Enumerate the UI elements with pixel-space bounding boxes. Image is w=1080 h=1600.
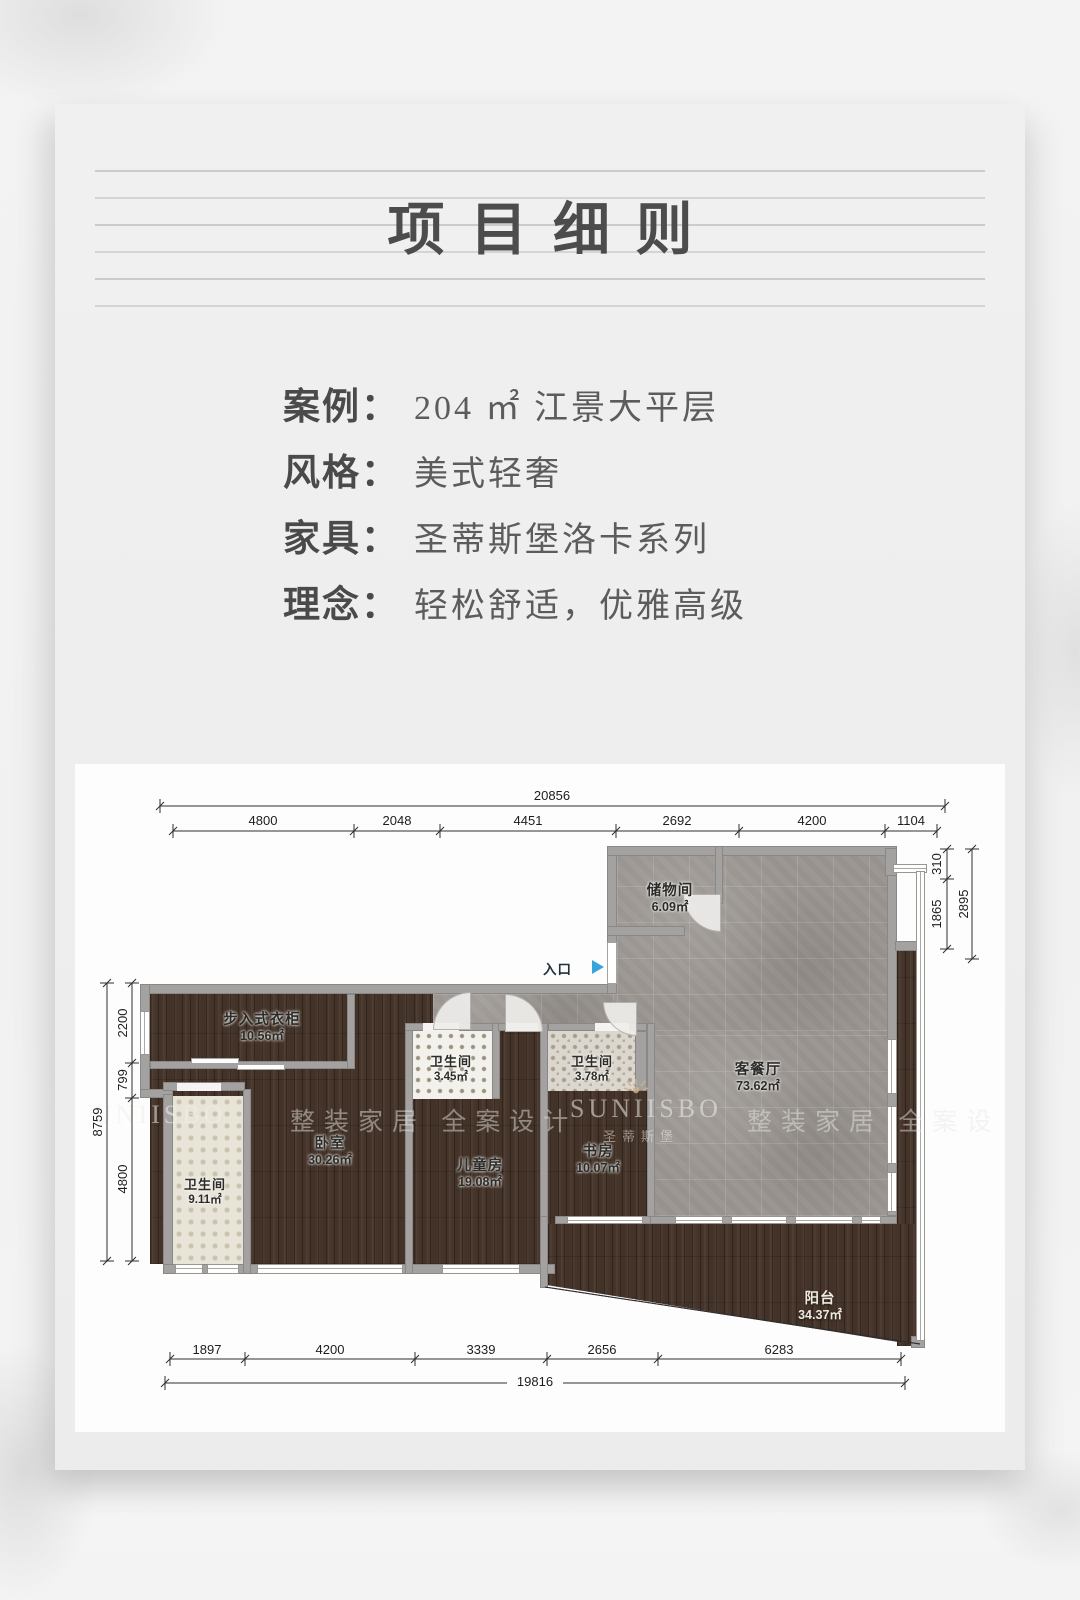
window: [887, 1106, 897, 1164]
info-label: 家具：: [283, 519, 400, 560]
sliding-door: [237, 1064, 285, 1070]
svg-text:310: 310: [929, 853, 944, 875]
rule-line: [95, 305, 985, 307]
room-label-balcony: 阳台 34.37㎡: [770, 1290, 870, 1324]
room-label-bedroom: 卧室 30.26㎡: [280, 1135, 380, 1169]
wall: [607, 926, 685, 936]
room-label-living: 客餐厅 73.62㎡: [708, 1061, 808, 1095]
wall: [647, 1023, 655, 1224]
info-value: 204 ㎡ 江景大平层: [414, 390, 719, 427]
info-value: 美式轻奢: [414, 456, 562, 493]
svg-text:6283: 6283: [765, 1342, 794, 1357]
room-label-bath-left: 卫生间 9.11㎡: [157, 1177, 253, 1208]
room-label-storage: 储物间 6.09㎡: [620, 882, 720, 916]
svg-text:4451: 4451: [514, 813, 543, 828]
svg-text:2048: 2048: [383, 813, 412, 828]
rule-line: [95, 170, 985, 172]
page-title: 项目细则: [55, 184, 1025, 266]
info-row-concept: 理念：轻松舒适，优雅高级: [283, 574, 747, 628]
svg-text:4200: 4200: [798, 813, 827, 828]
window: [175, 1264, 203, 1274]
svg-text:1865: 1865: [929, 900, 944, 929]
info-row-furniture: 家具：圣蒂斯堡洛卡系列: [283, 508, 710, 562]
wood-balcony: [548, 1224, 918, 1349]
svg-text:1897: 1897: [193, 1342, 222, 1357]
svg-text:1104: 1104: [897, 813, 925, 828]
svg-text:2200: 2200: [115, 1009, 130, 1038]
tile-living-lower: [653, 1031, 890, 1216]
background-blob: [0, 0, 230, 110]
window: [795, 1216, 853, 1224]
svg-text:2895: 2895: [956, 890, 971, 919]
info-value: 圣蒂斯堡洛卡系列: [414, 522, 710, 559]
background-blob: [1020, 500, 1080, 800]
svg-text:2656: 2656: [588, 1342, 617, 1357]
svg-text:19816: 19816: [517, 1374, 553, 1389]
rule-line: [95, 278, 985, 280]
window: [140, 1011, 150, 1055]
poster-card: 项目细则 案例：204 ㎡ 江景大平层 风格：美式轻奢 家具：圣蒂斯堡洛卡系列 …: [55, 104, 1025, 1470]
svg-text:799: 799: [115, 1069, 130, 1091]
window: [887, 1172, 897, 1212]
entry-arrow-icon: [592, 960, 604, 974]
wall: [540, 1216, 548, 1288]
svg-text:2692: 2692: [663, 813, 692, 828]
entry-label: 入口: [543, 958, 572, 978]
room-label-bath-mid: 卫生间 3.45㎡: [405, 1054, 497, 1085]
info-row-case: 案例：204 ㎡ 江景大平层: [283, 376, 719, 430]
sliding-door: [191, 1058, 239, 1064]
entry-door: [607, 942, 617, 984]
info-row-style: 风格：美式轻奢: [283, 442, 562, 496]
room-label-study: 书房 10.07㎡: [548, 1143, 648, 1177]
svg-text:3339: 3339: [467, 1342, 496, 1357]
window: [887, 1039, 897, 1094]
window: [675, 1216, 723, 1224]
svg-text:20856: 20856: [534, 788, 570, 803]
wall: [607, 846, 897, 856]
info-label: 案例：: [283, 387, 400, 428]
info-label: 理念：: [283, 585, 400, 626]
window: [731, 1216, 787, 1224]
svg-text:4200: 4200: [316, 1342, 345, 1357]
svg-text:8759: 8759: [90, 1108, 105, 1137]
room-label-kids: 儿童房 19.08㎡: [430, 1157, 530, 1191]
door-opening: [177, 1083, 221, 1091]
window: [861, 1216, 881, 1224]
svg-text:4800: 4800: [249, 813, 278, 828]
floor-plan: UNIISBO 整装家居 全案设计 SUNIISBO 圣蒂斯堡 整装家居 全案设…: [75, 764, 1005, 1432]
window: [567, 1216, 643, 1224]
info-value: 轻松舒适，优雅高级: [414, 588, 747, 625]
room-label-bath-right: 卫生间 3.78㎡: [546, 1054, 638, 1085]
info-label: 风格：: [283, 453, 400, 494]
window: [207, 1264, 239, 1274]
wall: [140, 984, 617, 994]
window: [257, 1264, 403, 1274]
window: [916, 871, 925, 1341]
wall: [347, 994, 355, 1069]
svg-text:4800: 4800: [115, 1165, 130, 1194]
window: [442, 1264, 520, 1274]
room-label-closet: 步入式衣柜 10.56㎡: [192, 1011, 332, 1045]
